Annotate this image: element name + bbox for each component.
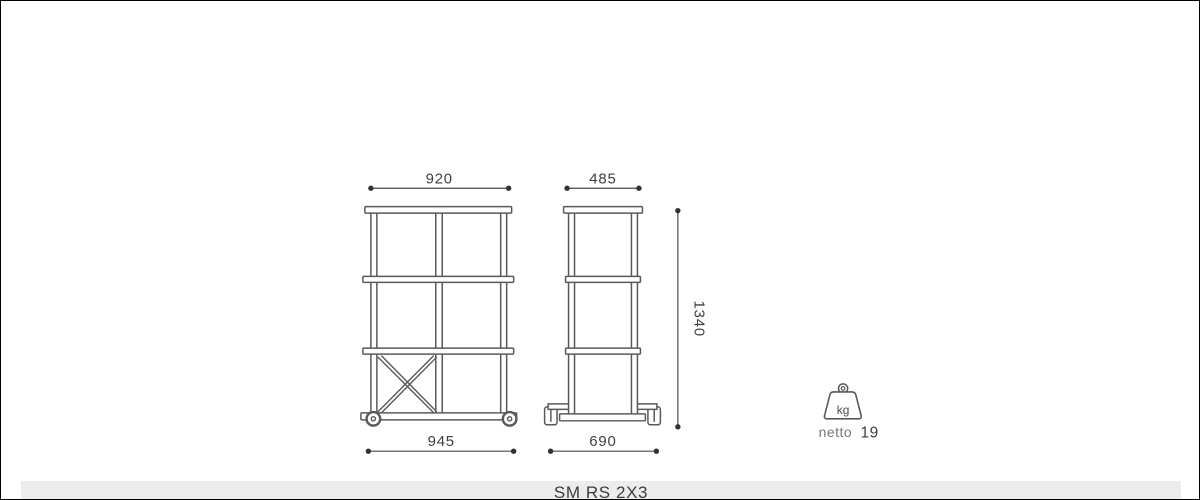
side-bottom-shelf <box>560 414 646 421</box>
side-top-shelf <box>564 207 643 213</box>
front-right-wheel <box>503 412 517 426</box>
dimension-side-depth-top: 485 <box>564 170 641 191</box>
dim-label-side-depth-bottom: 690 <box>589 433 616 450</box>
front-left-post <box>371 210 377 417</box>
side-middle-shelf-2 <box>566 348 641 354</box>
side-left-post <box>569 210 575 419</box>
technical-drawing: 920 485 945 690 <box>1 1 1199 499</box>
product-code: SM RS 2X3 <box>554 481 648 500</box>
dim-label-front-width-bottom: 945 <box>428 433 455 450</box>
dim-label-front-width-top: 920 <box>426 170 453 187</box>
weight-netto-value: 19 <box>861 425 879 442</box>
dimension-front-width-top: 920 <box>368 170 511 191</box>
weight-block: kg netto 19 <box>819 384 879 442</box>
dim-label-side-depth-top: 485 <box>589 170 616 187</box>
front-middle-shelf-2 <box>363 348 514 354</box>
side-view <box>545 207 661 425</box>
weight-icon: kg <box>824 384 861 419</box>
weight-unit-label: kg <box>837 403 850 417</box>
front-middle-shelf-1 <box>363 276 514 282</box>
front-left-wheel <box>367 412 381 426</box>
dim-label-height: 1340 <box>690 301 707 337</box>
dimension-height: 1340 <box>675 208 707 430</box>
footer-bar: SM RS 2X3 <box>21 481 1181 500</box>
front-middle-post <box>436 210 442 417</box>
front-cross-brace <box>378 356 437 413</box>
front-view <box>361 207 517 426</box>
product-drawing-page: 920 485 945 690 <box>0 0 1200 500</box>
dimension-front-width-bottom: 945 <box>366 433 517 454</box>
front-right-post <box>501 210 507 417</box>
weight-netto-label: netto <box>819 424 853 440</box>
front-top-shelf <box>365 207 512 213</box>
side-middle-shelf-1 <box>566 276 641 282</box>
front-bottom-bar <box>361 413 517 420</box>
dimension-side-depth-bottom: 690 <box>548 433 659 454</box>
side-right-post <box>631 210 637 419</box>
